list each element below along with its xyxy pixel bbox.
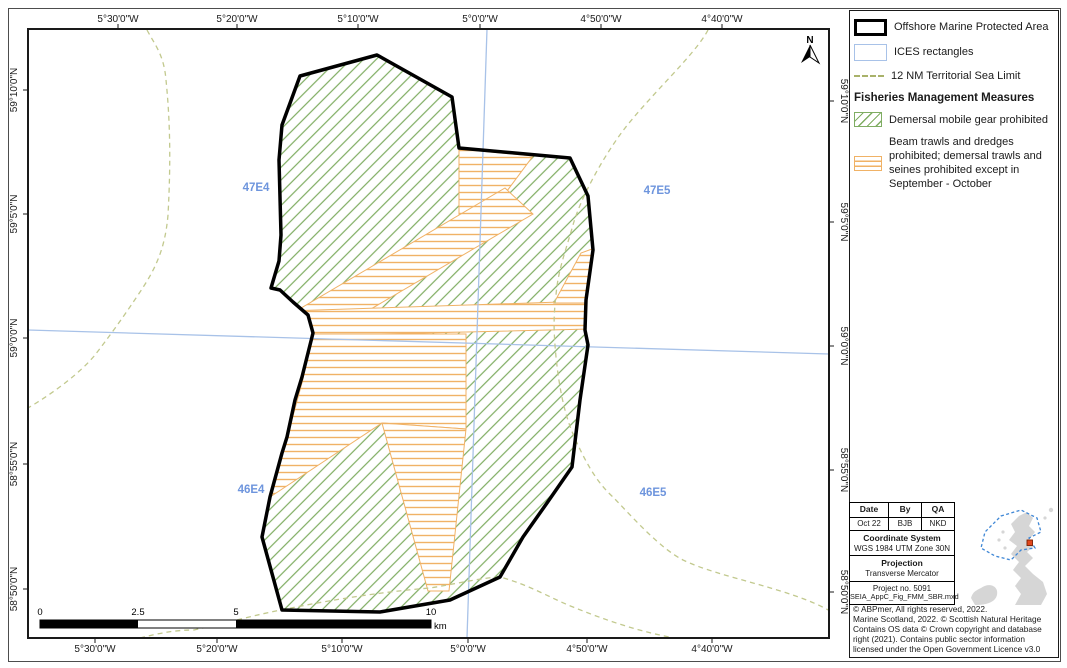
scale-tick-5: 5: [233, 607, 238, 618]
mpa-swatch-icon: [854, 19, 887, 36]
table-header-date: Date: [850, 503, 889, 518]
axis-label: 59°5'0"N: [838, 203, 849, 242]
dashed-line-swatch-icon: [854, 75, 884, 77]
axis-label: 59°0'0"N: [9, 319, 20, 358]
figure-page: 47E4 47E5 46E4 46E5 N 0 2.5 5: [0, 0, 1067, 668]
legend-item-demersal: Demersal mobile gear prohibited: [854, 112, 1053, 127]
legend-item-12nm: 12 NM Territorial Sea Limit: [854, 69, 1053, 83]
table-header-by: By: [889, 503, 922, 518]
side-panel: Offshore Marine Protected Area ICES rect…: [849, 10, 1059, 658]
table-header-qa: QA: [922, 503, 955, 518]
coordinate-system-label: Coordinate System: [850, 534, 954, 544]
table-value-date: Oct 22: [850, 517, 889, 531]
legend-label: Offshore Marine Protected Area: [894, 20, 1049, 34]
axis-label: 4°40'0"W: [701, 14, 743, 25]
axis-label: 5°0'0"W: [450, 644, 486, 655]
scale-tick-0: 0: [37, 607, 42, 618]
legend-label: Beam trawls and dredges prohibited; deme…: [889, 135, 1053, 191]
axis-label: 59°0'0"N: [838, 327, 849, 366]
project-file-name: SEIA_AppC_Fig_FMM_SBR.mxd: [850, 593, 954, 601]
axis-label: 5°30'0"W: [97, 14, 139, 25]
legend-label: Demersal mobile gear prohibited: [889, 113, 1048, 127]
axis-label: 4°40'0"W: [691, 644, 733, 655]
legend-label: 12 NM Territorial Sea Limit: [891, 69, 1020, 83]
axis-label: 5°30'0"W: [74, 644, 116, 655]
ices-swatch-icon: [854, 44, 887, 61]
ices-label-47e5: 47E5: [644, 185, 671, 197]
axis-label: 59°10'0"N: [838, 79, 849, 124]
axis-label: 58°55'0"N: [838, 448, 849, 493]
coordinate-system-value: WGS 1984 UTM Zone 30N: [850, 544, 954, 553]
projection-label: Projection: [850, 559, 954, 569]
axis-label: 5°10'0"W: [337, 14, 379, 25]
legend-item-beam-trawls: Beam trawls and dredges prohibited; deme…: [854, 135, 1053, 191]
axis-labels-left: 59°10'0"N 59°5'0"N 59°0'0"N 58°55'0"N 58…: [9, 68, 20, 612]
axis-label: 58°50'0"N: [9, 567, 20, 612]
legend-section-header: Fisheries Management Measures: [854, 92, 1053, 104]
copyright-text: © ABPmer, All rights reserved, 2022. Mar…: [850, 603, 1059, 656]
inset-great-britain-landmass: [1009, 512, 1047, 605]
table-value-qa: NKD: [922, 517, 955, 531]
axis-label: 5°10'0"W: [321, 644, 363, 655]
legend-item-ices: ICES rectangles: [854, 44, 1053, 61]
axis-label: 58°50'0"N: [838, 570, 849, 615]
axis-labels-bottom: 5°30'0"W 5°20'0"W 5°10'0"W 5°0'0"W 4°50'…: [74, 644, 733, 655]
projection-cell: Projection Transverse Mercator: [850, 556, 955, 581]
project-cell: Project no. 5091 SEIA_AppC_Fig_FMM_SBR.m…: [850, 581, 955, 605]
projection-value: Transverse Mercator: [850, 569, 954, 578]
axis-label: 5°0'0"W: [462, 14, 498, 25]
metadata-table: Date By QA Oct 22 BJB NKD Coordinate Sys…: [849, 502, 955, 605]
info-section: Date By QA Oct 22 BJB NKD Coordinate Sys…: [849, 502, 1060, 605]
axis-label: 59°5'0"N: [9, 195, 20, 234]
green-hatch-swatch-icon: [854, 112, 882, 127]
table-value-by: BJB: [889, 517, 922, 531]
ices-label-46e5: 46E5: [640, 487, 667, 499]
ices-label-46e4: 46E4: [238, 484, 265, 496]
axis-labels-right: 59°10'0"N 59°5'0"N 59°0'0"N 58°55'0"N 58…: [838, 79, 849, 615]
legend-item-mpa: Offshore Marine Protected Area: [854, 19, 1053, 36]
inset-ireland-landmass: [971, 585, 997, 605]
orange-hatch-swatch-icon: [854, 156, 882, 171]
legend-label: ICES rectangles: [894, 45, 973, 59]
axis-label: 58°55'0"N: [9, 442, 20, 487]
legend: Offshore Marine Protected Area ICES rect…: [850, 11, 1058, 191]
coordinate-system-cell: Coordinate System WGS 1984 UTM Zone 30N: [850, 531, 955, 556]
axis-labels-top: 5°30'0"W 5°20'0"W 5°10'0"W 5°0'0"W 4°50'…: [97, 14, 743, 25]
copyright-line: licensed under the Open Government Licen…: [853, 645, 1057, 655]
axis-label: 59°10'0"N: [9, 68, 20, 113]
scale-tick-10: 10: [426, 607, 437, 618]
axis-label: 4°50'0"W: [580, 14, 622, 25]
scale-tick-2-5: 2.5: [131, 607, 144, 618]
axis-label: 5°20'0"W: [216, 14, 258, 25]
ices-label-47e4: 47E4: [243, 182, 270, 194]
axis-label: 4°50'0"W: [566, 644, 608, 655]
scale-unit: km: [434, 621, 447, 632]
inset-site-marker: [1027, 540, 1033, 546]
location-inset-map: [955, 502, 1062, 605]
axis-label: 5°20'0"W: [196, 644, 238, 655]
north-arrow-label: N: [806, 35, 813, 46]
